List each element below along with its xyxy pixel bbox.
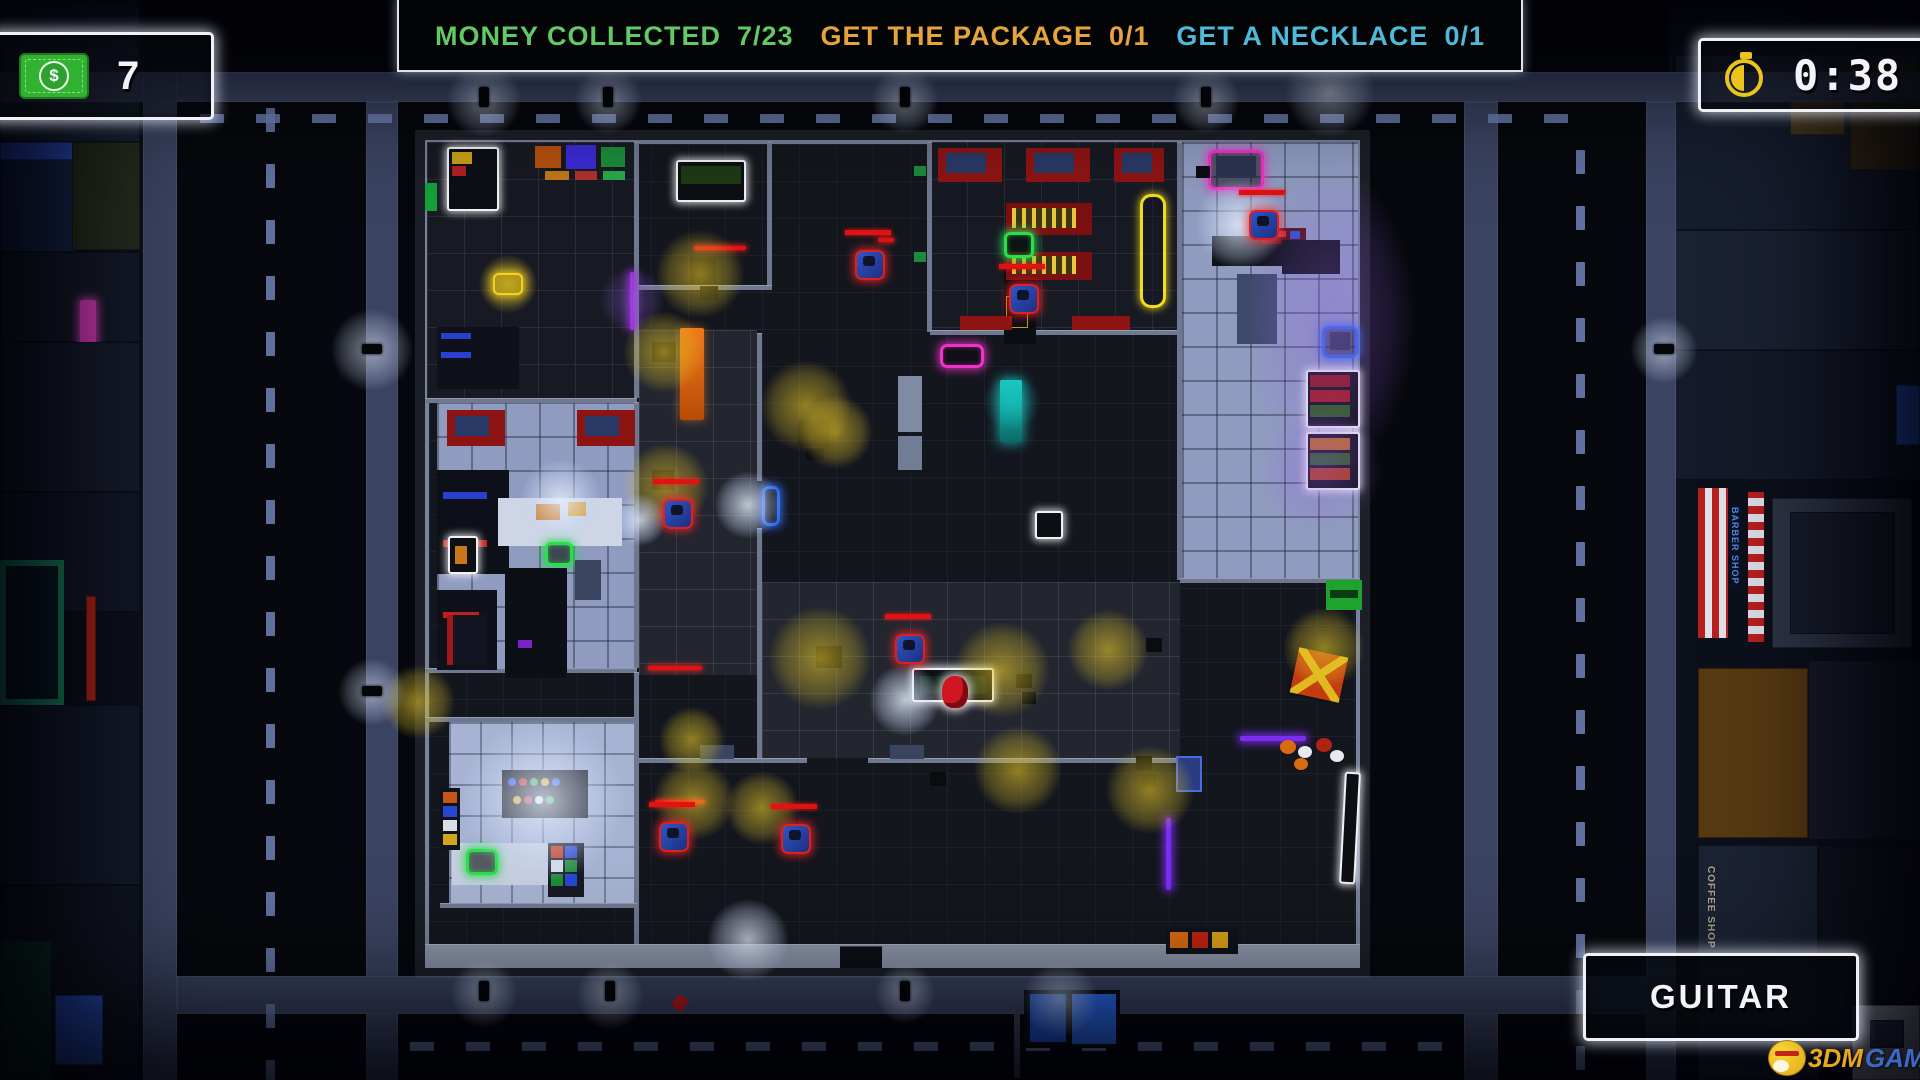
- bld: [0, 142, 76, 160]
- prop: [404, 694, 416, 706]
- prop: [1310, 468, 1350, 480]
- prop: [1240, 736, 1306, 741]
- prop: [575, 560, 601, 600]
- enemy-sprite: [781, 824, 811, 854]
- streetlight: [605, 981, 615, 1001]
- lane-dash: [266, 1060, 275, 1080]
- 3dm-mascot-icon: [1768, 1040, 1806, 1076]
- exit-door: [1140, 194, 1166, 308]
- prop: [1146, 638, 1162, 652]
- prop: [690, 258, 716, 284]
- prop: [455, 546, 467, 564]
- lane-dash: [1576, 1046, 1585, 1070]
- lane-dash: [368, 114, 392, 123]
- lane-dash: [410, 1042, 434, 1051]
- prop: [508, 778, 516, 786]
- lane-dash: [266, 164, 275, 188]
- lane-dash: [266, 388, 275, 412]
- laser-tripwire: [648, 666, 702, 670]
- vending-machine: [680, 328, 704, 420]
- lane-dash: [802, 1042, 826, 1051]
- prop: [1282, 240, 1340, 274]
- lane-dash: [1576, 710, 1585, 734]
- enemy-guard: [885, 614, 931, 666]
- lane-dash: [984, 114, 1008, 123]
- prop: [565, 860, 577, 872]
- prop: [1216, 156, 1256, 178]
- lane-dash: [1576, 542, 1585, 566]
- lane-dash: [858, 1042, 882, 1051]
- prop: [585, 416, 619, 436]
- prop: [551, 846, 563, 858]
- prop: [541, 778, 549, 786]
- prop: [1192, 932, 1208, 948]
- prop: [681, 166, 741, 184]
- prop: [1310, 453, 1350, 465]
- lane-dash: [1576, 430, 1585, 454]
- prop: [1072, 316, 1130, 330]
- lane-dash: [1576, 206, 1585, 230]
- lane-dash: [1576, 878, 1585, 902]
- lane-dash: [1250, 1042, 1274, 1051]
- dollar-bill-icon: $: [19, 53, 89, 99]
- lane-dash: [536, 114, 560, 123]
- enemy-health-bar: [1239, 190, 1285, 195]
- enemy-health-bar: [845, 230, 891, 235]
- prop: [890, 745, 924, 759]
- lane-dash: [266, 220, 275, 244]
- lane-dash: [266, 892, 275, 916]
- game-map[interactable]: [0, 0, 1920, 1080]
- prop: [425, 183, 437, 211]
- prop: [443, 806, 457, 817]
- prop: [518, 640, 532, 648]
- lane-dash: [1376, 114, 1400, 123]
- prop: [455, 416, 489, 436]
- prop: [530, 778, 538, 786]
- watermark-3dm: 3DM: [1808, 1043, 1863, 1074]
- bld: [1896, 385, 1920, 445]
- lane-dash: [1576, 822, 1585, 846]
- lane-dash: [266, 276, 275, 300]
- prop: [1014, 1006, 1020, 1078]
- prop: [1166, 818, 1171, 890]
- prop: [1298, 746, 1312, 758]
- sidewalk: [143, 72, 177, 1080]
- bld: [0, 560, 64, 705]
- lane-dash: [592, 114, 616, 123]
- lane-dash: [522, 1042, 546, 1051]
- lane-dash: [266, 1004, 275, 1028]
- prop: [1316, 738, 1332, 752]
- teal-machine: [1000, 380, 1022, 442]
- prop: [513, 796, 521, 804]
- prop: [1034, 153, 1074, 173]
- lane-dash: [1432, 114, 1456, 123]
- sidewalk: [1646, 102, 1676, 1080]
- streetlight: [362, 344, 382, 354]
- prop: [1310, 438, 1350, 450]
- enemy-guard: [1239, 190, 1285, 242]
- streetlight: [362, 686, 382, 696]
- prop: [519, 778, 527, 786]
- lane-dash: [1208, 114, 1232, 123]
- lane-dash: [1576, 654, 1585, 678]
- pinwheel-box: [1290, 647, 1348, 702]
- prop: [443, 834, 457, 845]
- bld: [0, 940, 52, 1080]
- bld: [0, 705, 140, 885]
- money-counter: $ 7: [0, 32, 214, 120]
- lane-dash: [1576, 766, 1585, 790]
- prop: [806, 448, 824, 460]
- prop: [447, 615, 487, 665]
- prop: [1136, 756, 1152, 770]
- objectives-bar: MONEY COLLECTED7/23GET THE PACKAGE0/1GET…: [397, 0, 1523, 72]
- crate-blue: [566, 145, 596, 169]
- prop: [1196, 166, 1210, 178]
- collectible-safe: [1004, 232, 1034, 258]
- wall: [425, 398, 637, 403]
- held-item-label-box: GUITAR: [1583, 953, 1859, 1041]
- prop: [552, 778, 560, 786]
- prop: [960, 316, 1012, 330]
- enemy-health-bar: [771, 804, 817, 809]
- laser-tripwire: [694, 246, 746, 250]
- lane-dash: [1264, 114, 1288, 123]
- collectible-laptop: [466, 849, 498, 875]
- lane-dash: [648, 114, 672, 123]
- prop: [1310, 405, 1350, 417]
- watermark: 3DMGAME: [1768, 1040, 1920, 1076]
- streetlight: [479, 981, 489, 1001]
- prop: [816, 646, 842, 668]
- coffee-shop-sign: COFFEE SHOP: [1705, 866, 1716, 949]
- streetlight: [900, 87, 910, 107]
- wall: [1177, 142, 1182, 580]
- enemy-sprite: [895, 634, 925, 664]
- prop: [603, 171, 625, 180]
- prop: [898, 436, 922, 470]
- wall: [927, 142, 932, 332]
- lane-dash: [1040, 114, 1064, 123]
- bld: [86, 596, 96, 701]
- collectible-register: [545, 542, 573, 566]
- prop: [443, 492, 487, 499]
- prop: [914, 166, 926, 176]
- dollar-symbol: $: [49, 66, 58, 86]
- watermark-game: GAME: [1865, 1043, 1920, 1074]
- prop: [565, 846, 577, 858]
- prop: [1280, 740, 1296, 754]
- lane-dash: [266, 556, 275, 580]
- prop: [443, 792, 457, 803]
- lane-dash: [1576, 318, 1585, 342]
- bld: [0, 342, 140, 492]
- wall: [634, 142, 639, 398]
- crate-orange: [535, 146, 561, 168]
- bld: [1790, 512, 1895, 634]
- prop: [1170, 932, 1188, 948]
- lane-dash: [1138, 1042, 1162, 1051]
- streetlight: [1201, 87, 1211, 107]
- prop: [1330, 750, 1344, 762]
- enemy-guard: [649, 802, 695, 854]
- bld: [1698, 488, 1728, 638]
- prop: [441, 333, 471, 339]
- wall: [425, 717, 637, 722]
- streetlight: [479, 87, 489, 107]
- prop: [535, 796, 543, 804]
- prop: [505, 568, 567, 678]
- prop: [443, 820, 457, 831]
- prop: [568, 502, 586, 516]
- objective-get-a-necklace-progress: 0/1: [1444, 21, 1485, 51]
- prop: [452, 152, 472, 164]
- lane-dash: [1152, 114, 1176, 123]
- prop: [930, 772, 946, 786]
- player-character: [942, 676, 968, 708]
- lane-dash: [266, 836, 275, 860]
- prop: [630, 272, 634, 330]
- lane-dash: [266, 444, 275, 468]
- prop: [546, 796, 554, 804]
- prop: [898, 376, 922, 432]
- lane-dash: [928, 114, 952, 123]
- bld: [1675, 230, 1920, 350]
- bld: [1675, 350, 1920, 480]
- objective-get-a-necklace-label: GET A NECKLACE: [1176, 21, 1428, 51]
- bld: [55, 995, 103, 1065]
- enemy-health-bar: [999, 264, 1045, 269]
- lane-dash: [816, 114, 840, 123]
- lane-dash: [1576, 374, 1585, 398]
- prop: [1330, 590, 1358, 598]
- prop: [551, 874, 563, 886]
- prop: [1176, 756, 1202, 792]
- enemy-guard: [845, 230, 891, 282]
- wall: [930, 330, 1180, 335]
- wall: [757, 528, 762, 760]
- lane-dash: [760, 114, 784, 123]
- lane-dash: [266, 724, 275, 748]
- prop: [1212, 932, 1228, 948]
- barber-shop-sign: BARBER SHOP: [1729, 505, 1741, 587]
- enemy-health-bar: [653, 479, 699, 484]
- game-screen: BARBER SHOP COFFEE SHOP MONEY COLLECTED7…: [0, 0, 1920, 1080]
- lane-dash: [690, 1042, 714, 1051]
- lane-dash: [266, 500, 275, 524]
- lane-dash: [266, 332, 275, 356]
- prop: [452, 166, 466, 176]
- prop: [536, 504, 560, 520]
- sidewalk: [177, 976, 1646, 1014]
- bld: [1698, 668, 1808, 838]
- prop: [1030, 994, 1066, 1042]
- sidewalk: [366, 102, 398, 1080]
- timer: 0:38: [1698, 38, 1920, 112]
- bld: [0, 252, 140, 342]
- money-value: 7: [117, 54, 139, 99]
- prop: [700, 286, 718, 300]
- lane-dash: [746, 1042, 770, 1051]
- objective-money-collected-label: MONEY COLLECTED: [435, 21, 721, 51]
- streetlight: [603, 87, 613, 107]
- wall: [440, 903, 637, 908]
- lane-dash: [970, 1042, 994, 1051]
- lane-dash: [1418, 1042, 1442, 1051]
- prop: [798, 420, 830, 446]
- pink-machine: [940, 344, 984, 368]
- prop: [1022, 692, 1036, 704]
- enemy-sprite: [659, 822, 689, 852]
- lane-dash: [466, 1042, 490, 1051]
- objective-get-the-package-progress: 0/1: [1109, 21, 1150, 51]
- lane-dash: [266, 612, 275, 636]
- prop: [1012, 208, 1076, 228]
- lane-dash: [1320, 114, 1344, 123]
- enemy-guard: [999, 264, 1045, 316]
- prop: [914, 252, 926, 262]
- lane-dash: [1194, 1042, 1218, 1051]
- bld: [1808, 660, 1920, 840]
- lane-dash: [1576, 486, 1585, 510]
- prop: [1016, 674, 1032, 688]
- prop: [946, 153, 986, 173]
- objective-get-a-necklace: GET A NECKLACE0/1: [1176, 21, 1485, 52]
- prop: [565, 874, 577, 886]
- wall: [767, 142, 772, 287]
- lane-dash: [1576, 598, 1585, 622]
- enemy-sprite: [663, 499, 693, 529]
- lane-dash: [634, 1042, 658, 1051]
- enemy-sprite: [855, 250, 885, 280]
- lane-dash: [256, 114, 280, 123]
- objective-money-collected-progress: 7/23: [737, 21, 794, 51]
- stopwatch-icon: [1725, 52, 1767, 98]
- prop: [1142, 774, 1156, 786]
- streetlight: [1654, 344, 1674, 354]
- lane-dash: [312, 114, 336, 123]
- prop: [652, 342, 676, 362]
- lane-dash: [578, 1042, 602, 1051]
- lane-dash: [266, 948, 275, 972]
- lane-dash: [704, 114, 728, 123]
- prop: [545, 171, 569, 180]
- crate-green: [601, 147, 625, 167]
- enemy-guard: [653, 479, 699, 531]
- prop: [1290, 231, 1300, 239]
- bld: [1748, 492, 1764, 642]
- prop: [551, 860, 563, 872]
- wall: [757, 333, 762, 481]
- fridge: [1237, 274, 1277, 344]
- streetlight: [900, 981, 910, 1001]
- lane-dash: [1576, 150, 1585, 174]
- timer-value: 0:38: [1793, 51, 1902, 100]
- enemy-guard: [771, 804, 817, 856]
- objective-get-the-package: GET THE PACKAGE0/1: [820, 21, 1149, 52]
- lane-dash: [266, 668, 275, 692]
- objective-get-the-package-label: GET THE PACKAGE: [820, 21, 1093, 51]
- prop: [575, 171, 597, 180]
- lane-dash: [872, 114, 896, 123]
- lane-dash: [1576, 262, 1585, 286]
- prop: [1072, 994, 1116, 1044]
- bld: [72, 142, 140, 250]
- collectible-money: [493, 273, 523, 295]
- prop: [700, 745, 734, 759]
- lane-dash: [914, 1042, 938, 1051]
- neon-door: [762, 486, 780, 526]
- sidewalk: [1464, 102, 1498, 1080]
- objective-money-collected: MONEY COLLECTED7/23: [435, 21, 794, 52]
- lane-dash: [1096, 114, 1120, 123]
- enemy-health-bar: [885, 614, 931, 619]
- lane-dash: [266, 780, 275, 804]
- prop: [1310, 390, 1350, 402]
- wall: [840, 946, 882, 968]
- lane-dash: [1306, 1042, 1330, 1051]
- lane-dash: [1488, 114, 1512, 123]
- shop-counter: [498, 498, 622, 546]
- prop: [1310, 375, 1350, 387]
- sign-highlight: [1035, 511, 1063, 539]
- lane-dash: [480, 114, 504, 123]
- lane-dash: [1544, 114, 1568, 123]
- prop: [1294, 758, 1308, 770]
- prop: [1330, 332, 1350, 350]
- wall: [634, 672, 639, 965]
- enemy-sprite: [1009, 284, 1039, 314]
- prop: [441, 352, 471, 358]
- enemy-health-bar: [649, 802, 695, 807]
- enemy-sprite: [1249, 210, 1279, 240]
- prop: [1122, 153, 1152, 173]
- sidewalk: [0, 72, 1920, 102]
- lane-dash: [424, 114, 448, 123]
- prop: [447, 615, 453, 665]
- lane-dash: [1362, 1042, 1386, 1051]
- prop: [524, 796, 532, 804]
- held-item-label: GUITAR: [1650, 978, 1792, 1016]
